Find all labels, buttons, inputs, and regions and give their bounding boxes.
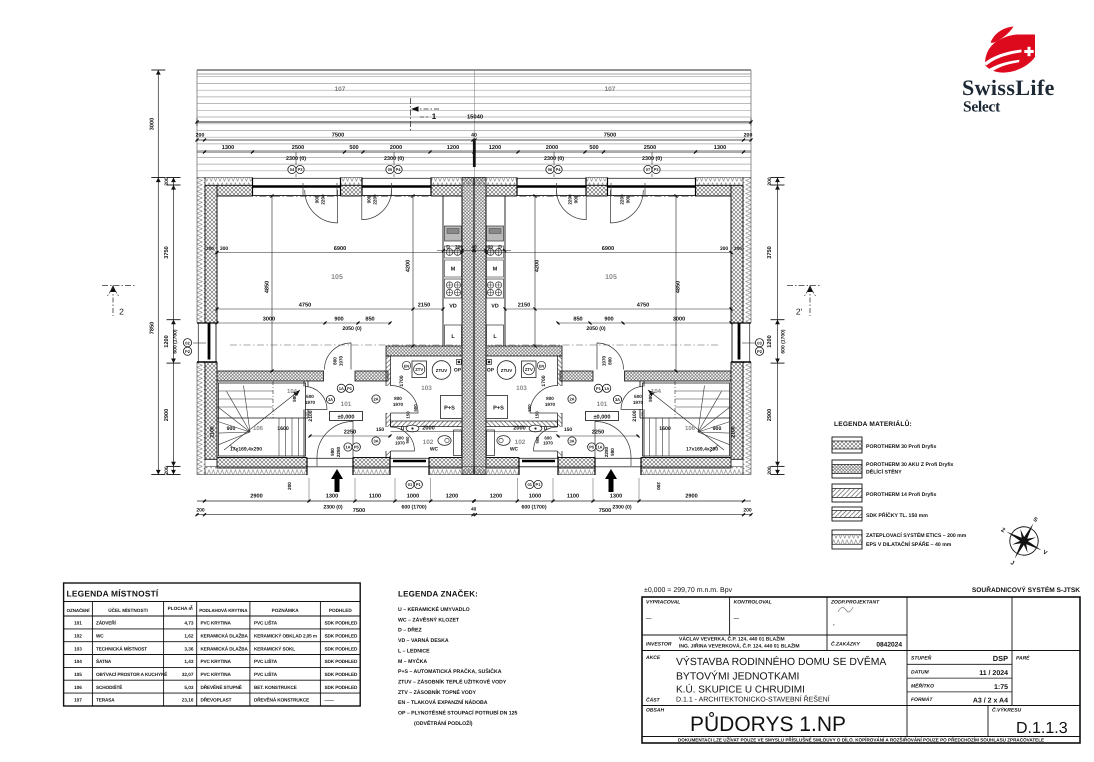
svg-text:101: 101 [341, 401, 352, 408]
svg-text:KERAMICKÁ DLAŽBA: KERAMICKÁ DLAŽBA [201, 632, 249, 638]
svg-text:WC – ZÁVĚSNÝ KLOZET: WC – ZÁVĚSNÝ KLOZET [398, 616, 460, 623]
svg-text:1A: 1A [604, 386, 609, 391]
svg-text:104: 104 [651, 388, 662, 395]
svg-text:INVESTOR: INVESTOR [646, 642, 672, 648]
svg-text:DOKUMENTACI LZE UŽÍVAT POUZE V: DOKUMENTACI LZE UŽÍVAT POUZE VE SMYSLU P… [678, 737, 1044, 743]
svg-text:P2: P2 [185, 349, 191, 354]
svg-text:ZATEPLOVACÍ SYSTÉM ETICS – 200: ZATEPLOVACÍ SYSTÉM ETICS – 200 mm [866, 532, 967, 539]
svg-text:800: 800 [546, 396, 554, 401]
svg-text:2: 2 [119, 307, 124, 317]
svg-text:2200: 2200 [620, 194, 625, 205]
svg-text:500: 500 [413, 404, 418, 412]
svg-text:1300: 1300 [222, 145, 234, 151]
svg-text:2100: 2100 [632, 410, 638, 421]
svg-text:±0,000 = 299,70 m.n.m. Bpv: ±0,000 = 299,70 m.n.m. Bpv [644, 587, 733, 594]
svg-text:EN – TLAKOVÁ EXPANZNÍ NÁDOBA: EN – TLAKOVÁ EXPANZNÍ NÁDOBA [398, 699, 488, 706]
svg-text:1970: 1970 [633, 400, 644, 405]
svg-text:—: — [646, 616, 652, 622]
svg-text:WC: WC [510, 447, 519, 453]
svg-text:D: D [446, 245, 450, 251]
svg-text:2500: 2500 [292, 145, 304, 151]
svg-text:U: U [544, 426, 548, 432]
svg-text:101: 101 [74, 621, 82, 626]
svg-text:1600: 1600 [659, 426, 671, 432]
svg-text:7500: 7500 [599, 508, 611, 514]
svg-text:±0,000: ±0,000 [593, 414, 610, 420]
svg-text:07: 07 [646, 167, 651, 172]
svg-text:3000: 3000 [263, 316, 275, 322]
svg-text:105: 105 [605, 274, 617, 281]
svg-text:DŘEVĚNÁ KONSTRUKCE: DŘEVĚNÁ KONSTRUKCE [254, 697, 309, 703]
svg-text:06: 06 [548, 167, 553, 172]
svg-text:23,16: 23,16 [182, 698, 194, 703]
svg-text:900: 900 [574, 195, 579, 203]
svg-text:106: 106 [253, 425, 264, 432]
svg-text:V: V [1042, 550, 1048, 557]
svg-text:ÚČEL MÍSTNOSTI: ÚČEL MÍSTNOSTI [108, 607, 148, 613]
svg-text:2900: 2900 [767, 409, 773, 421]
svg-text:MĚŘÍTKO: MĚŘÍTKO [911, 682, 934, 689]
svg-text:ZTUV: ZTUV [436, 368, 448, 373]
svg-text:103: 103 [74, 646, 82, 651]
svg-text:VYPRACOVAL: VYPRACOVAL [646, 600, 680, 606]
svg-text:SOUŘADNICOVÝ SYSTÉM S-JTSK: SOUŘADNICOVÝ SYSTÉM S-JTSK [972, 586, 1080, 594]
svg-text:800: 800 [394, 396, 402, 401]
svg-text:106: 106 [74, 685, 82, 690]
svg-text:OP: OP [487, 368, 495, 374]
svg-text:PLOCHA m: PLOCHA m [168, 606, 193, 611]
svg-text:DATUM: DATUM [911, 670, 930, 676]
svg-text:D.1.1.3: D.1.1.3 [1016, 720, 1068, 737]
svg-text:600 (1700): 600 (1700) [173, 329, 179, 354]
svg-text:SDK PODHLED: SDK PODHLED [325, 685, 359, 690]
svg-text:ZTV: ZTV [415, 367, 423, 372]
svg-text:1100: 1100 [369, 494, 381, 500]
svg-text:200: 200 [743, 508, 752, 514]
svg-text:P2: P2 [757, 349, 763, 354]
svg-text:ZTV: ZTV [525, 367, 533, 372]
svg-text:L: L [451, 334, 455, 340]
svg-text:150: 150 [406, 411, 411, 419]
svg-text:1000: 1000 [407, 494, 419, 500]
svg-text:500: 500 [527, 404, 532, 412]
svg-text:103: 103 [421, 385, 432, 392]
svg-text:P4: P4 [556, 167, 562, 172]
svg-text:DĚLÍCÍ STĚNY: DĚLÍCÍ STĚNY [866, 469, 902, 476]
svg-text:VÝSTAVBA RODINNÉHO DOMU SE DVĚ: VÝSTAVBA RODINNÉHO DOMU SE DVĚMA [676, 655, 886, 668]
svg-text:2050 (0): 2050 (0) [342, 326, 362, 332]
svg-text:2100: 2100 [210, 426, 216, 437]
svg-text:2300 (0): 2300 (0) [612, 505, 632, 511]
svg-text:2280: 2280 [336, 446, 341, 457]
svg-text:1200: 1200 [489, 145, 501, 151]
svg-text:17x169,4x290: 17x169,4x290 [686, 447, 718, 453]
svg-text:1970: 1970 [339, 355, 344, 366]
svg-text:P4: P4 [396, 167, 402, 172]
svg-text:1970: 1970 [395, 441, 405, 446]
svg-text:104: 104 [74, 659, 82, 664]
svg-text:ŠATNA: ŠATNA [96, 658, 112, 664]
svg-text:01: 01 [408, 482, 413, 487]
svg-text:2A: 2A [373, 397, 378, 402]
svg-text:1,43: 1,43 [184, 659, 194, 664]
svg-text:P+S – AUTOMATICKÁ PRAČKA, SU: P+S – AUTOMATICKÁ PRAČKA, SUŠIČKA [398, 668, 502, 675]
svg-text:4750: 4750 [299, 303, 311, 309]
svg-text:U: U [401, 426, 405, 432]
svg-text:SDK PODHLED: SDK PODHLED [325, 646, 359, 651]
svg-text:900: 900 [367, 195, 372, 203]
svg-text:200: 200 [206, 246, 214, 251]
svg-text:1700: 1700 [399, 375, 405, 386]
svg-text:500: 500 [589, 145, 598, 151]
svg-text:900: 900 [535, 436, 540, 444]
svg-text:KERAMICKÁ DLAŽBA: KERAMICKÁ DLAŽBA [201, 645, 249, 651]
svg-text:1970: 1970 [543, 441, 553, 446]
svg-text:KERAMICKÝ OBKLAD 2,05 m: KERAMICKÝ OBKLAD 2,05 m [254, 632, 317, 638]
svg-text:200: 200 [767, 177, 773, 186]
svg-text:3750: 3750 [164, 246, 170, 258]
svg-text:105: 105 [74, 672, 82, 677]
svg-text:SDK PODHLED: SDK PODHLED [325, 672, 359, 677]
svg-text:900: 900 [626, 195, 631, 203]
svg-text:850: 850 [573, 316, 582, 322]
svg-text:4850: 4850 [265, 281, 271, 293]
svg-text:40: 40 [471, 133, 477, 139]
svg-text:04: 04 [290, 167, 295, 172]
svg-text:300: 300 [485, 245, 493, 251]
svg-text:PVC KRYTINA: PVC KRYTINA [201, 621, 232, 626]
svg-text:1200: 1200 [767, 335, 773, 347]
svg-text:2000: 2000 [390, 145, 402, 151]
svg-text:OZNAČENÍ: OZNAČENÍ [67, 607, 91, 613]
svg-text:200: 200 [656, 482, 661, 490]
svg-text:2000: 2000 [513, 426, 525, 432]
svg-text:200: 200 [164, 177, 170, 186]
svg-text:107: 107 [335, 86, 346, 93]
svg-text:32,07: 32,07 [182, 672, 194, 677]
svg-text:1300: 1300 [610, 494, 622, 500]
svg-text:D: D [498, 245, 502, 251]
svg-text:OP – PLYNOTĚSNÉ STOUPACÍ POT: OP – PLYNOTĚSNÉ STOUPACÍ POTRUBÍ DN 125 [398, 710, 518, 717]
svg-text:J: J [1009, 560, 1015, 567]
svg-text:VD – VARNÁ DESKA: VD – VARNÁ DESKA [398, 637, 449, 644]
svg-text:TERASA: TERASA [96, 698, 115, 703]
svg-text:600 (1700): 600 (1700) [521, 505, 546, 511]
svg-text:2000: 2000 [422, 426, 434, 432]
svg-text:2900: 2900 [685, 494, 697, 500]
svg-text:200: 200 [767, 466, 773, 475]
svg-text:OBÝVACÍ PROSTOR A KUCHYNĚ: OBÝVACÍ PROSTOR A KUCHYNĚ [96, 671, 167, 677]
svg-text:(ODVĚTRÁNÍ PODLOŽÍ): (ODVĚTRÁNÍ PODLOŽÍ) [414, 720, 473, 727]
svg-text:900: 900 [334, 316, 343, 322]
svg-text:P+S: P+S [493, 406, 504, 412]
svg-text:2250: 2250 [592, 429, 604, 435]
svg-text:105: 105 [331, 274, 343, 281]
svg-text:600: 600 [306, 394, 314, 399]
svg-text:L – LEDNICE: L – LEDNICE [398, 648, 430, 654]
svg-text:LEGENDA MATERIÁLŮ:: LEGENDA MATERIÁLŮ: [834, 419, 912, 428]
svg-text:6900: 6900 [334, 246, 346, 252]
svg-text:P1: P1 [347, 386, 353, 391]
svg-text:980: 980 [648, 394, 653, 402]
svg-text:ZTUV: ZTUV [501, 368, 513, 373]
svg-text:600: 600 [634, 394, 642, 399]
svg-text:102: 102 [423, 439, 434, 446]
svg-text:1700: 1700 [541, 375, 547, 386]
svg-text:LEGENDA ZNAČEK:: LEGENDA ZNAČEK: [398, 589, 478, 599]
svg-text:KERAMICKÝ SOKL: KERAMICKÝ SOKL [254, 645, 295, 651]
svg-text:7500: 7500 [332, 133, 344, 139]
svg-text:2200: 2200 [568, 194, 573, 205]
svg-text:AKCE: AKCE [645, 655, 661, 661]
svg-text:S: S [1032, 516, 1039, 524]
svg-text:2200: 2200 [321, 194, 326, 205]
svg-text:3A: 3A [569, 439, 574, 444]
svg-text:40: 40 [471, 507, 477, 513]
svg-text:POROTHERM 30 Profi Dryfix: POROTHERM 30 Profi Dryfix [866, 444, 936, 450]
svg-text:300: 300 [720, 246, 729, 252]
svg-text:150: 150 [535, 411, 540, 419]
svg-text:2100: 2100 [731, 426, 737, 437]
svg-text:1970: 1970 [305, 400, 316, 405]
svg-text:2900: 2900 [164, 409, 170, 421]
svg-text:—: — [734, 616, 740, 622]
svg-text:PARÉ: PARÉ [1016, 655, 1030, 662]
svg-text:ING. JIŘINA VEVERKOVÁ, Č.P. 12: ING. JIŘINA VEVERKOVÁ, Č.P. 124, 440 01 … [679, 643, 800, 650]
svg-text:PODHLED: PODHLED [329, 608, 353, 613]
svg-text:2300 (0): 2300 (0) [323, 505, 343, 511]
svg-text:800: 800 [333, 357, 338, 365]
svg-text:17x169,4x290: 17x169,4x290 [230, 447, 262, 453]
svg-text:M: M [451, 267, 456, 273]
svg-text:107: 107 [605, 86, 616, 93]
svg-text:1000: 1000 [529, 494, 541, 500]
svg-text:VD: VD [449, 304, 457, 310]
svg-text:102: 102 [515, 439, 526, 446]
svg-text:1: 1 [432, 112, 437, 121]
svg-text:101: 101 [597, 401, 608, 408]
svg-text:OBSAH: OBSAH [646, 708, 664, 714]
svg-text:PVC LIŠTA: PVC LIŠTA [254, 658, 278, 664]
svg-text:WC: WC [96, 633, 104, 638]
svg-text:P1: P1 [596, 386, 602, 391]
svg-text:150: 150 [376, 427, 385, 433]
svg-text:Č.VÝKRESU: Č.VÝKRESU [992, 707, 1022, 714]
svg-text:SDK PODHLED: SDK PODHLED [325, 659, 359, 664]
svg-text:1970: 1970 [602, 355, 607, 366]
svg-text:1,62: 1,62 [184, 633, 194, 638]
svg-text:1300: 1300 [326, 494, 338, 500]
svg-text:7500: 7500 [353, 508, 365, 514]
svg-text:03: 03 [757, 340, 762, 345]
svg-text:05: 05 [388, 167, 393, 172]
svg-text:DŘEVĚNÉ STUPNĚ: DŘEVĚNÉ STUPNĚ [201, 684, 242, 690]
svg-text:EPS V DILATAČNÍ SPÁŘE – 40 mm: EPS V DILATAČNÍ SPÁŘE – 40 mm [866, 541, 952, 548]
svg-text:3000: 3000 [673, 316, 685, 322]
svg-text:WC: WC [430, 447, 439, 453]
svg-text:1A: 1A [345, 445, 350, 450]
svg-text:ZÁDVEŘÍ: ZÁDVEŘÍ [96, 620, 117, 626]
svg-text:2200: 2200 [373, 194, 378, 205]
svg-text:P3: P3 [298, 167, 304, 172]
svg-text:900: 900 [604, 316, 613, 322]
svg-text:4750: 4750 [637, 303, 649, 309]
svg-text:900: 900 [405, 436, 410, 444]
svg-text:SCHODIŠTĚ: SCHODIŠTĚ [96, 684, 122, 690]
svg-text:200: 200 [287, 482, 292, 490]
svg-text:D – DŘEZ: D – DŘEZ [398, 627, 422, 634]
svg-text:300: 300 [455, 245, 463, 251]
svg-text:2A: 2A [569, 397, 574, 402]
svg-text:200: 200 [164, 466, 170, 475]
svg-text:1A: 1A [339, 386, 344, 391]
svg-text:BET. KONSTRUKCE: BET. KONSTRUKCE [254, 685, 297, 690]
svg-text:02: 02 [185, 340, 190, 345]
svg-text:1970: 1970 [393, 402, 404, 407]
svg-text:PVC LIŠTA: PVC LIŠTA [254, 620, 278, 626]
svg-text:1200: 1200 [447, 145, 459, 151]
svg-text:2900: 2900 [250, 494, 262, 500]
svg-text:EN: EN [539, 364, 545, 368]
svg-text:2150: 2150 [418, 303, 430, 309]
svg-text:900: 900 [315, 195, 320, 203]
svg-text:3A: 3A [373, 439, 378, 444]
svg-text:200: 200 [744, 133, 753, 139]
svg-text:300: 300 [220, 246, 229, 252]
svg-text:ZTV – ZÁSOBNÍK TOPNÉ VODY: ZTV – ZÁSOBNÍK TOPNÉ VODY [398, 689, 477, 696]
svg-text:150: 150 [564, 427, 573, 433]
svg-text:2': 2' [796, 307, 803, 317]
svg-text:40: 40 [471, 245, 477, 251]
svg-text:PVC KRYTINA: PVC KRYTINA [201, 659, 232, 664]
svg-text:1100: 1100 [567, 494, 579, 500]
svg-text:500: 500 [349, 145, 358, 151]
svg-text:DSP: DSP [993, 654, 1008, 663]
svg-text:4,73: 4,73 [184, 621, 194, 626]
svg-text:2: 2 [191, 605, 193, 609]
svg-text:Z: Z [1000, 527, 1006, 534]
svg-text:SDK PODHLED: SDK PODHLED [325, 621, 359, 626]
svg-text:3A: 3A [615, 397, 620, 402]
svg-text:980: 980 [610, 448, 615, 456]
svg-text:2500: 2500 [644, 145, 656, 151]
svg-text:POZNÁMKA: POZNÁMKA [272, 607, 300, 613]
svg-text:L: L [493, 334, 497, 340]
svg-text:900: 900 [227, 426, 236, 432]
svg-text:P3: P3 [654, 167, 660, 172]
svg-text:4850: 4850 [676, 281, 682, 293]
svg-text:5,03: 5,03 [184, 685, 194, 690]
svg-text:850: 850 [365, 316, 374, 322]
svg-text:PVC LIŠTA: PVC LIŠTA [254, 671, 278, 677]
svg-text:KONTROLOVAL: KONTROLOVAL [734, 600, 772, 606]
svg-text:P5: P5 [589, 445, 595, 450]
svg-text:——: —— [325, 698, 335, 703]
svg-text:POROTHERM 14 Profi Dryfix: POROTHERM 14 Profi Dryfix [866, 492, 936, 498]
svg-text:104: 104 [287, 388, 298, 395]
svg-text:3A: 3A [328, 397, 333, 402]
svg-text:VÁCLAV VEVERKA, Č.P. 124, 440: VÁCLAV VEVERKA, Č.P. 124, 440 01 BLAŽIM [679, 636, 785, 643]
svg-text:200: 200 [196, 508, 205, 514]
svg-text:SDK PODHLED: SDK PODHLED [325, 633, 359, 638]
svg-text:SwissLife: SwissLife [962, 75, 1055, 100]
svg-text:900: 900 [713, 426, 722, 432]
svg-text:P1: P1 [416, 482, 422, 487]
svg-text:200: 200 [734, 246, 742, 251]
svg-text:1970: 1970 [545, 402, 556, 407]
svg-text:1600: 1600 [277, 426, 289, 432]
svg-text:0842024: 0842024 [876, 642, 902, 649]
svg-text:11 / 2024: 11 / 2024 [979, 669, 1008, 677]
svg-text:2000: 2000 [546, 145, 558, 151]
svg-text:PŮDORYS 1.NP: PŮDORYS 1.NP [690, 712, 846, 736]
svg-text:EN: EN [404, 364, 410, 368]
svg-text:Select: Select [963, 99, 1001, 116]
svg-text:ZODP.PROJEKTANT: ZODP.PROJEKTANT [830, 600, 880, 606]
svg-text:±0,000: ±0,000 [337, 414, 354, 420]
svg-text:980: 980 [330, 448, 335, 456]
svg-text:LEGENDA MÍSTNOSTÍ: LEGENDA MÍSTNOSTÍ [67, 589, 159, 599]
svg-text:600 (1700): 600 (1700) [781, 329, 787, 354]
svg-text:4200: 4200 [406, 260, 412, 272]
svg-text:4200: 4200 [535, 260, 541, 272]
svg-text:P5: P5 [354, 445, 360, 450]
svg-text:STUPEŇ: STUPEŇ [911, 655, 932, 662]
svg-text:3,36: 3,36 [184, 646, 194, 651]
svg-text:1200: 1200 [446, 494, 458, 500]
svg-text:3000: 3000 [150, 118, 156, 130]
svg-text:2280: 2280 [604, 446, 609, 457]
svg-text:P+S: P+S [444, 406, 455, 412]
svg-text:2100: 2100 [308, 410, 314, 421]
svg-text:DŘEVOPLAST: DŘEVOPLAST [201, 697, 232, 703]
svg-text:3750: 3750 [767, 246, 773, 258]
svg-text:15040: 15040 [467, 114, 483, 121]
svg-text:P1: P1 [536, 482, 542, 487]
svg-text:6900: 6900 [602, 246, 614, 252]
svg-text:600 (1700): 600 (1700) [401, 505, 426, 511]
svg-text:2050 (0): 2050 (0) [586, 326, 606, 332]
svg-text:BYTOVÝMI JEDNOTKAMI: BYTOVÝMI JEDNOTKAMI [676, 670, 799, 683]
svg-text:ZTUV – ZÁSOBNÍK TEPLÉ UŽITKO: ZTUV – ZÁSOBNÍK TEPLÉ UŽITKOVÉ VODY [398, 678, 507, 685]
svg-text:VD: VD [491, 304, 499, 310]
svg-text:TECHNICKÁ MÍSTNOST: TECHNICKÁ MÍSTNOST [96, 645, 147, 651]
svg-text:SDK PŘÍČKY TL. 150 mm: SDK PŘÍČKY TL. 150 mm [866, 512, 928, 519]
svg-text:1:75: 1:75 [994, 684, 1008, 691]
svg-text:ČÁST: ČÁST [646, 697, 661, 704]
svg-text:PVC KRYTINA: PVC KRYTINA [201, 672, 232, 677]
svg-text:A3 / 2 x A4: A3 / 2 x A4 [973, 697, 1008, 705]
svg-text:103: 103 [516, 385, 527, 392]
svg-text:FORMÁT: FORMÁT [911, 696, 933, 703]
svg-text:M: M [493, 267, 498, 273]
svg-text:OP: OP [454, 368, 462, 374]
svg-text:7500: 7500 [604, 133, 616, 139]
svg-text:1300: 1300 [714, 145, 726, 151]
svg-text:1200: 1200 [490, 494, 502, 500]
svg-text:PODLAHOVÁ KRYTINA: PODLAHOVÁ KRYTINA [199, 608, 248, 613]
svg-text:Č.ZAKÁZKY: Č.ZAKÁZKY [831, 641, 861, 648]
svg-text:1200: 1200 [164, 335, 170, 347]
svg-text:107: 107 [74, 698, 82, 703]
svg-text:01: 01 [527, 482, 532, 487]
svg-text:800: 800 [608, 357, 613, 365]
svg-text:1A: 1A [597, 445, 602, 450]
svg-text:7850: 7850 [150, 322, 156, 334]
svg-text:102: 102 [74, 633, 82, 638]
svg-text:POROTHERM 30 AKU Z Profi Dryfi: POROTHERM 30 AKU Z Profi Dryfix [866, 462, 954, 468]
svg-text:M – MYČKA: M – MYČKA [398, 658, 427, 665]
